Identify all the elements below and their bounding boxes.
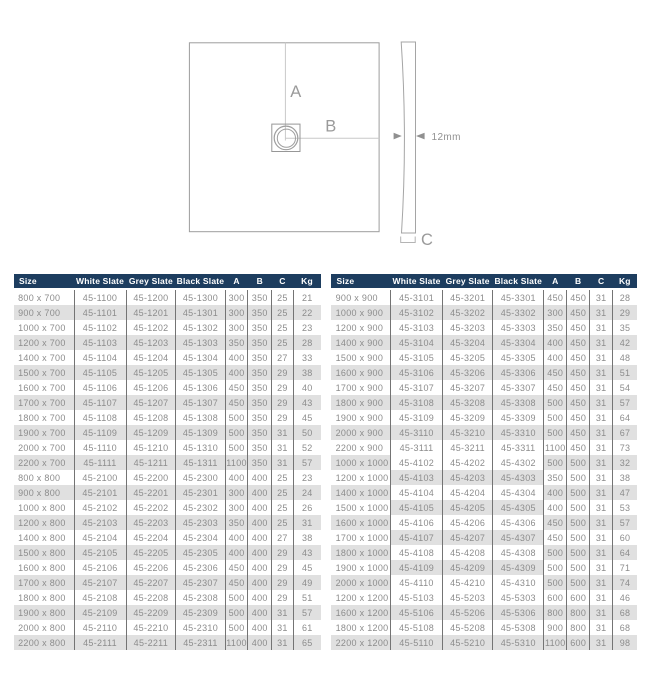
svg-text:B: B: [325, 118, 336, 136]
svg-text:C: C: [421, 231, 433, 249]
svg-text:A: A: [290, 83, 301, 101]
svg-text:12mm: 12mm: [432, 132, 461, 143]
